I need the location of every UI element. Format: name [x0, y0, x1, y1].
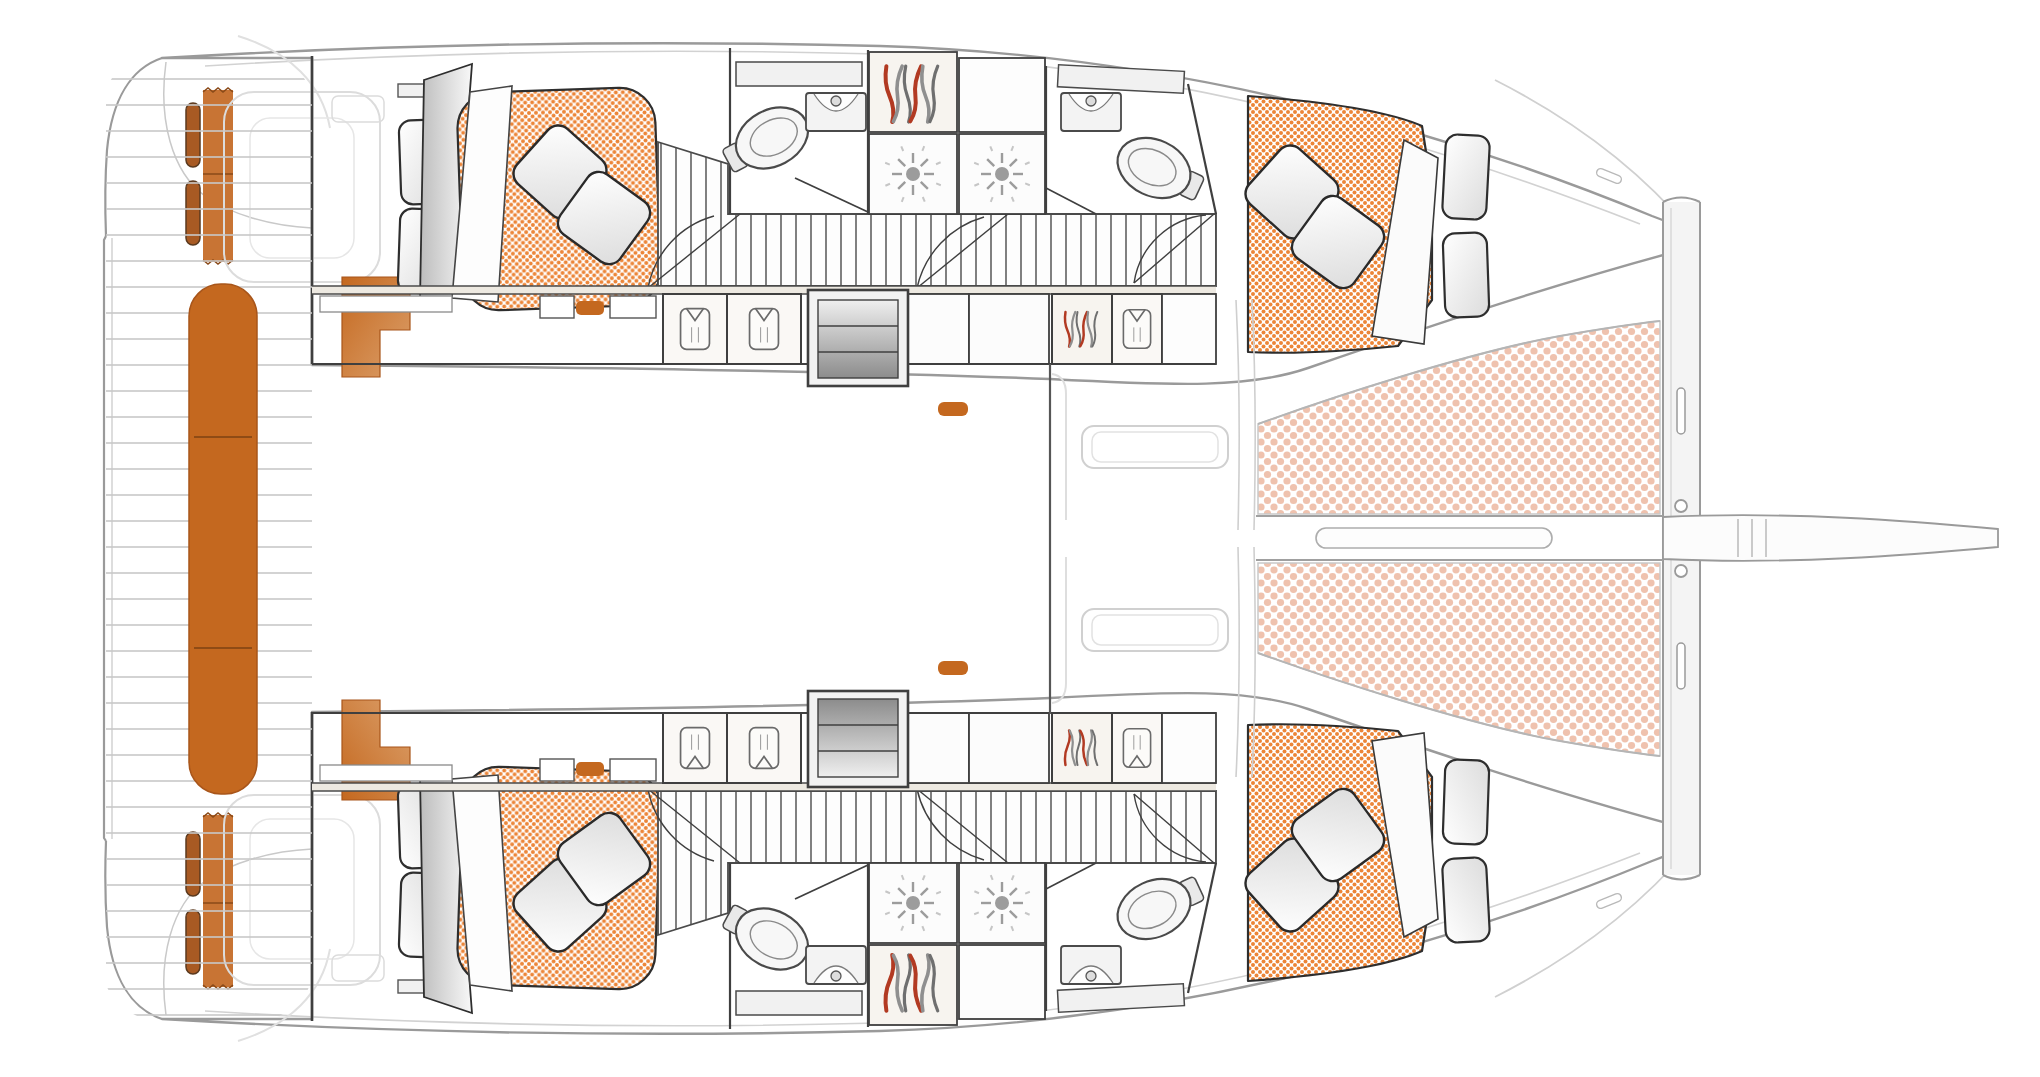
- bench-cushion: [1443, 232, 1490, 317]
- shirt-icon: [1123, 310, 1150, 348]
- bench-cushion: [1442, 134, 1490, 220]
- bowsprit: [1663, 515, 1998, 561]
- floorplan-drawing: [0, 0, 2040, 1077]
- grab-handle: [938, 402, 968, 416]
- starboard-hull: [105, 538, 1700, 1041]
- beam-fitting: [1675, 500, 1687, 512]
- grab-handle: [576, 301, 604, 315]
- companionway-stairs: [808, 290, 908, 386]
- port-hull: [105, 36, 1700, 539]
- shower-stall: [959, 134, 1045, 214]
- shelf: [610, 296, 656, 318]
- shelf: [320, 296, 452, 312]
- cabinet: [969, 294, 1049, 364]
- vanity-shelf: [736, 62, 862, 86]
- saloon-faint-line: [1052, 374, 1066, 520]
- shirt-icon: [681, 309, 710, 350]
- shirt-icon: [750, 309, 779, 350]
- bow-cleat: [1595, 167, 1622, 184]
- wardrobe-locker: [869, 52, 957, 132]
- shirt-locker: [1112, 294, 1162, 364]
- crossbeam: [1663, 198, 1700, 540]
- bow-walkway: [1256, 516, 1663, 560]
- wardrobe-locker-inboard: [1052, 294, 1112, 364]
- anchor-sprit: [1316, 528, 1552, 548]
- shirt-locker: [663, 294, 727, 364]
- transom-bench: [189, 284, 257, 794]
- beam-slot: [1677, 388, 1685, 434]
- shower-stall: [869, 134, 957, 214]
- shelf: [540, 296, 574, 318]
- cabinet: [959, 58, 1045, 132]
- shirt-locker: [727, 294, 801, 364]
- catamaran-floorplan: [0, 0, 2040, 1077]
- sink-icon: [806, 93, 866, 131]
- sink-icon: [1061, 93, 1121, 131]
- cabinet: [1162, 294, 1216, 364]
- cabinet: [901, 294, 969, 364]
